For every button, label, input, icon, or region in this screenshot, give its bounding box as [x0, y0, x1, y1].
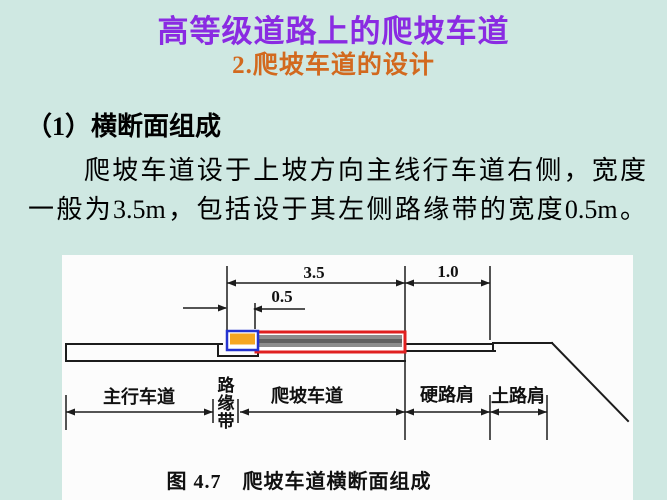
body-paragraph-line-2: 一般为3.5m，包括设于其左侧路缘带的宽度0.5m。 [28, 189, 646, 226]
figure-image: 3.5 1.0 0.5 主行车道 路 缘 带 爬坡车道 硬路肩 土路肩 图 4.… [62, 255, 633, 500]
label-climbing-lane: 爬坡车道 [271, 385, 343, 406]
road-outline [66, 343, 628, 421]
section-heading: （1）横断面组成 [26, 106, 221, 143]
figure-caption: 图 4.7 爬坡车道横断面组成 [167, 469, 432, 493]
label-curb-strip-char1: 路 [218, 375, 236, 395]
slide: { "slide": { "title": "高等级道路上的爬坡车道", "su… [0, 0, 667, 500]
body-paragraph-line-1: 爬坡车道设于上坡方向主线行车道右侧，宽度 [28, 150, 646, 187]
dimension-climbing-lane-width: 3.5 [303, 263, 324, 282]
label-curb-strip-char3: 带 [218, 411, 235, 431]
climbing-lane-dark-streak [259, 339, 402, 343]
climbing-lane-highlight [256, 332, 405, 352]
label-soil-shoulder: 土路肩 [491, 385, 545, 406]
curb-strip-orange-fill [230, 334, 255, 345]
label-hard-shoulder: 硬路肩 [420, 384, 474, 405]
dimension-hard-shoulder-width: 1.0 [437, 262, 458, 281]
dimension-curb-strip-width: 0.5 [271, 287, 292, 306]
page-subtitle: 2.爬坡车道的设计 [0, 45, 667, 81]
cross-section-diagram: 3.5 1.0 0.5 主行车道 路 缘 带 爬坡车道 硬路肩 土路肩 图 4.… [62, 255, 633, 500]
curb-strip-highlight [227, 331, 258, 350]
label-main-lane: 主行车道 [103, 386, 175, 407]
label-curb-strip-char2: 缘 [218, 393, 235, 413]
